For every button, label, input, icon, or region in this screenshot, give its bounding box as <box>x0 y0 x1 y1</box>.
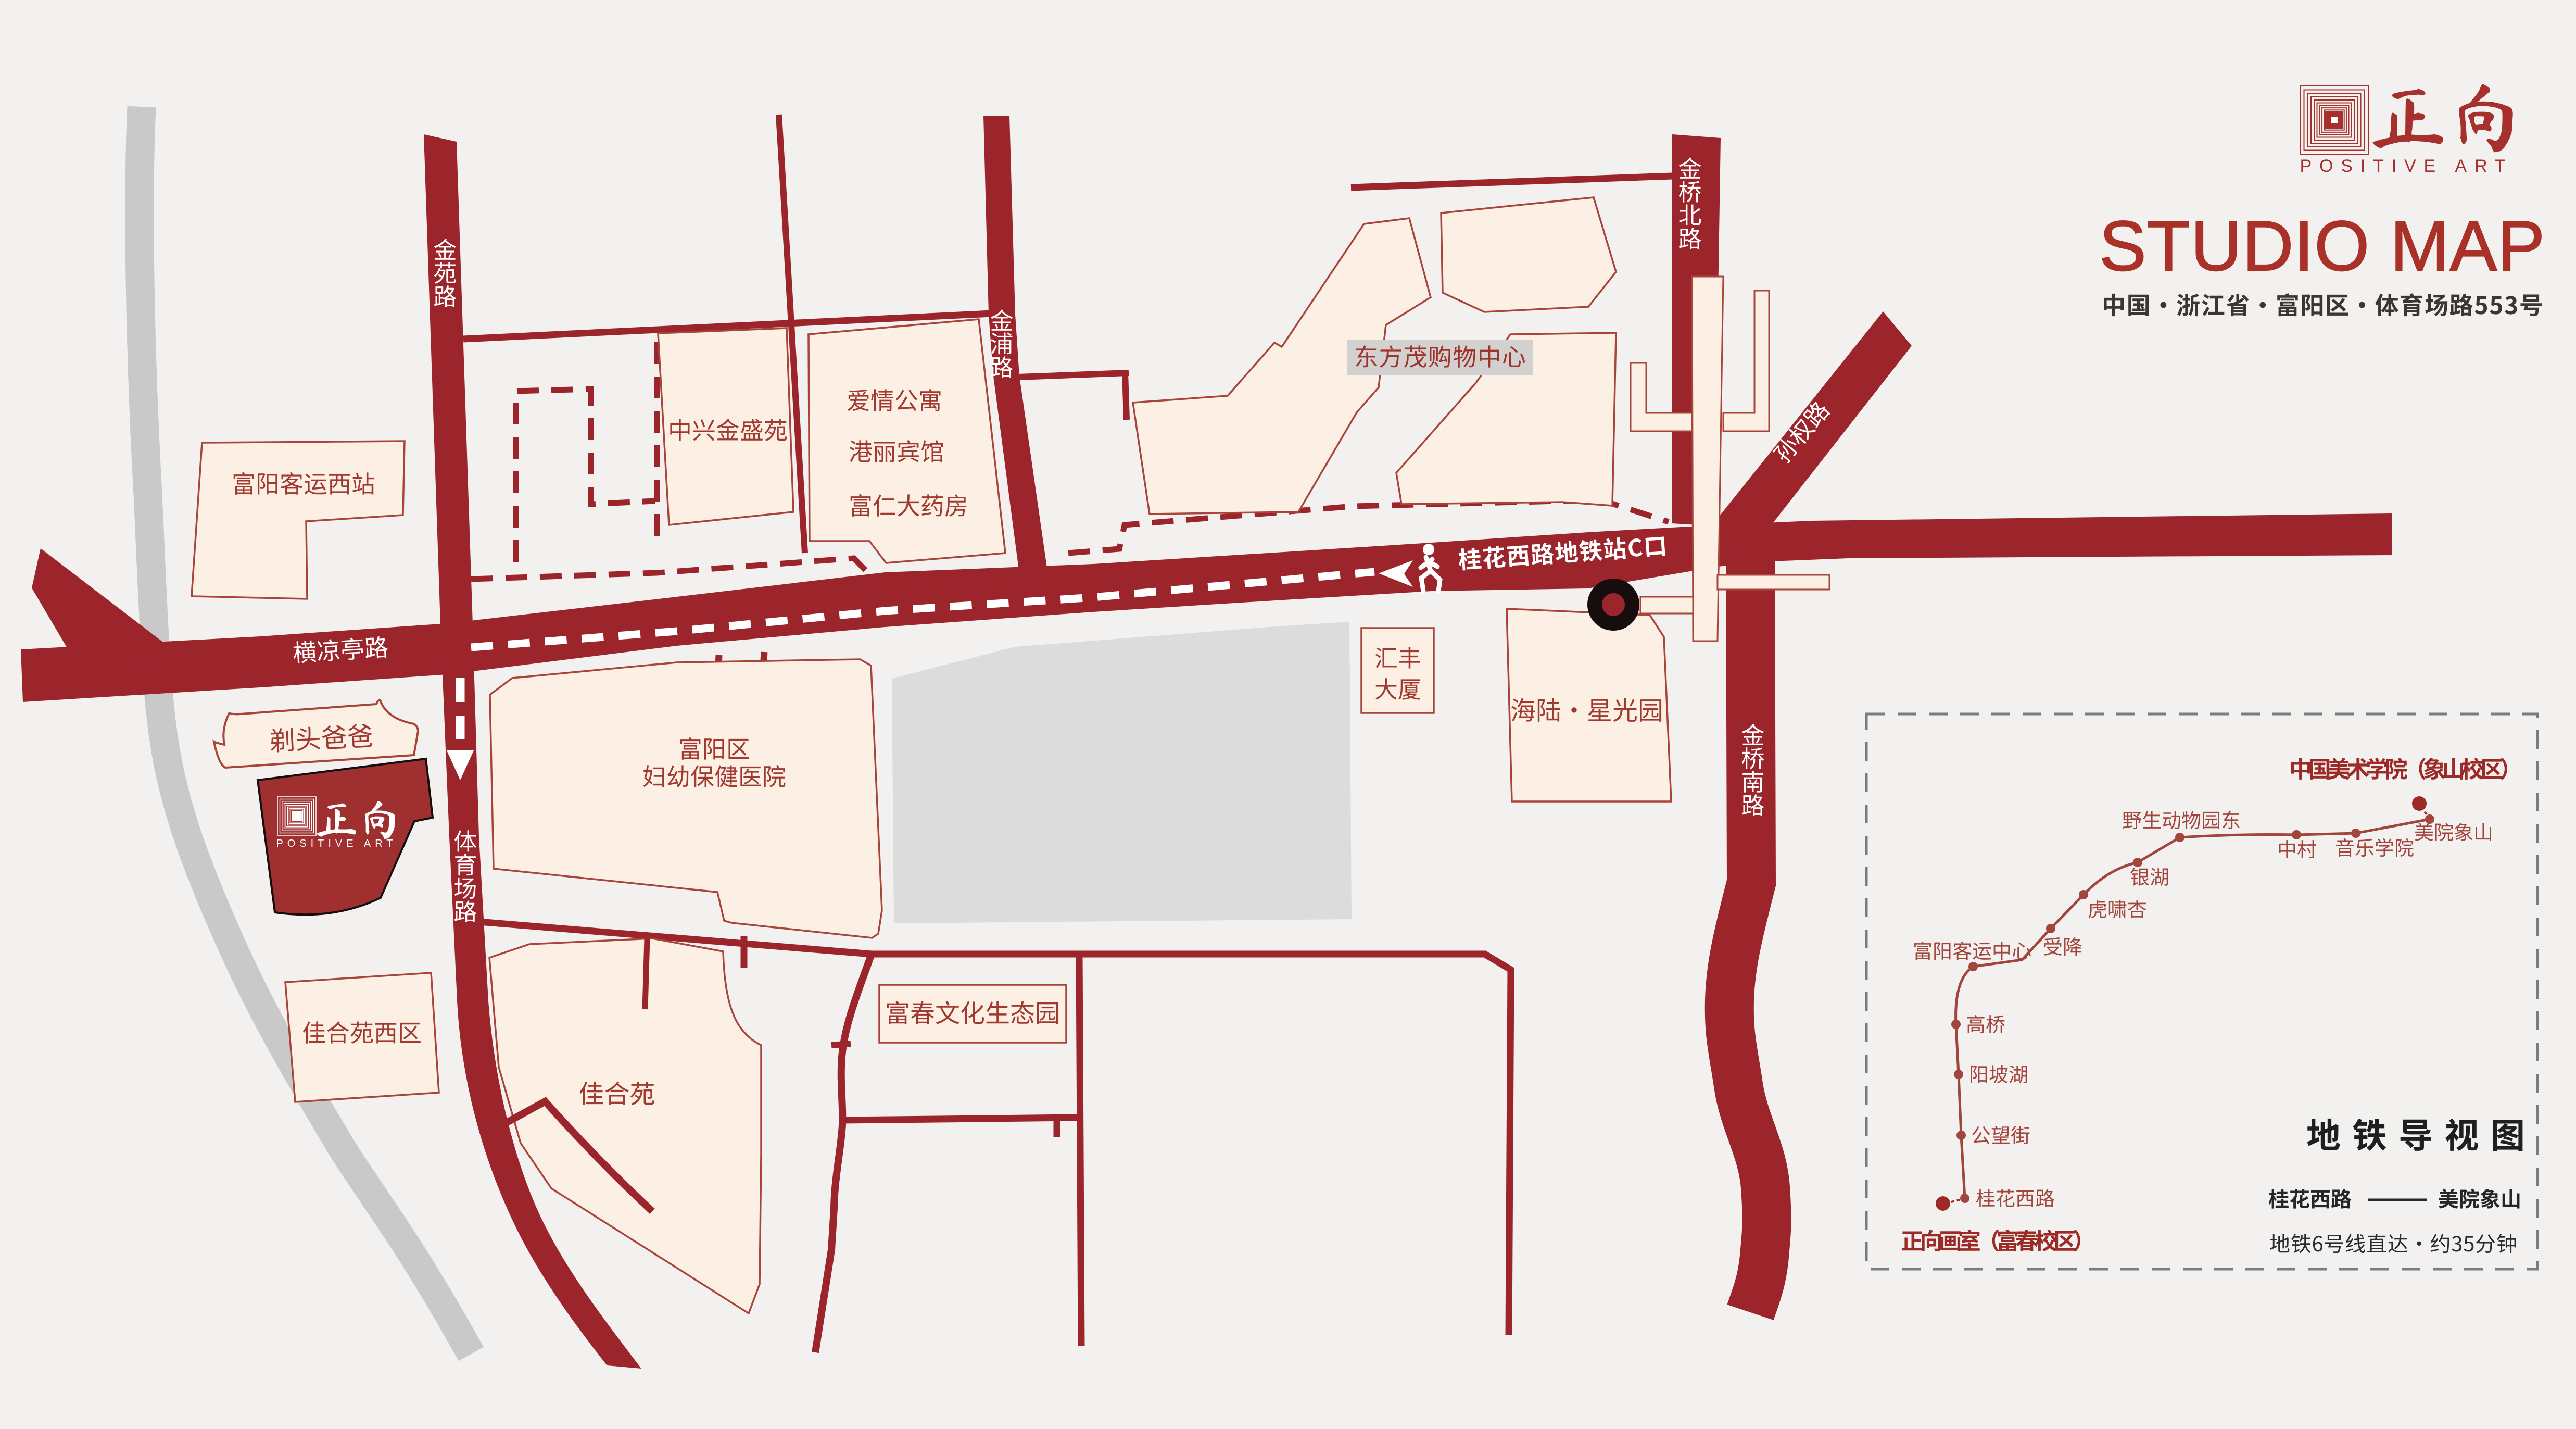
svg-text:富仁大药房: 富仁大药房 <box>849 487 968 522</box>
svg-text:佳合苑: 佳合苑 <box>578 1074 655 1111</box>
svg-text:富春文化生态园: 富春文化生态园 <box>885 993 1060 1030</box>
svg-text:中国·浙江省·富阳区·体育场路553号: 中国·浙江省·富阳区·体育场路553号 <box>2102 287 2543 321</box>
svg-text:高桥: 高桥 <box>1966 1009 2005 1037</box>
svg-text:POSITIVE ART: POSITIVE ART <box>276 838 397 849</box>
svg-text:富阳客运西站: 富阳客运西站 <box>232 466 375 500</box>
svg-text:美院象山: 美院象山 <box>2438 1183 2521 1213</box>
svg-text:中村: 中村 <box>2277 834 2317 862</box>
svg-text:金浦路: 金浦路 <box>985 308 1019 379</box>
svg-text:金桥北路: 金桥北路 <box>1673 156 1707 250</box>
svg-text:正向: 正向 <box>2369 77 2525 155</box>
svg-text:汇丰: 汇丰 <box>1374 640 1421 673</box>
svg-text:金桥南路: 金桥南路 <box>1736 723 1770 817</box>
svg-text:海陆·星光园: 海陆·星光园 <box>1510 691 1663 728</box>
svg-text:妇幼保健医院: 妇幼保健医院 <box>642 758 786 793</box>
svg-text:地铁6号线直达·约35分钟: 地铁6号线直达·约35分钟 <box>2269 1227 2517 1258</box>
svg-text:正向: 正向 <box>314 797 402 841</box>
svg-text:桂花西路: 桂花西路 <box>1976 1183 2055 1211</box>
svg-text:体育场路: 体育场路 <box>449 829 483 923</box>
svg-text:STUDIO MAP: STUDIO MAP <box>2099 206 2545 285</box>
svg-text:中国美术学院（象山校区）: 中国美术学院（象山校区） <box>2289 751 2522 784</box>
svg-text:爱情公寓: 爱情公寓 <box>847 382 942 417</box>
svg-text:港丽宾馆: 港丽宾馆 <box>849 433 944 468</box>
svg-text:POSITIVE ART: POSITIVE ART <box>2300 156 2513 176</box>
svg-text:受降: 受降 <box>2043 931 2082 960</box>
svg-text:横凉亭路: 横凉亭路 <box>292 629 389 669</box>
svg-text:美院象山: 美院象山 <box>2414 817 2493 845</box>
svg-text:银湖: 银湖 <box>2130 861 2169 890</box>
svg-text:东方茂购物中心: 东方茂购物中心 <box>1354 339 1526 373</box>
svg-text:剃头爸爸: 剃头爸爸 <box>268 716 374 758</box>
svg-text:公望街: 公望街 <box>1971 1120 2030 1148</box>
svg-text:富阳客运中心: 富阳客运中心 <box>1913 935 2031 964</box>
svg-text:大厦: 大厦 <box>1374 671 1421 705</box>
svg-text:虎啸杏: 虎啸杏 <box>2088 894 2147 922</box>
svg-text:野生动物园东: 野生动物园东 <box>2122 805 2241 833</box>
svg-text:佳合苑西区: 佳合苑西区 <box>302 1014 422 1049</box>
svg-text:音乐学院: 音乐学院 <box>2335 832 2414 861</box>
svg-text:中兴金盛苑: 中兴金盛苑 <box>668 412 788 446</box>
svg-text:地铁导视图: 地铁导视图 <box>2306 1108 2525 1158</box>
svg-text:桂花西路: 桂花西路 <box>2268 1183 2352 1213</box>
svg-text:正向画室（富春校区）: 正向画室（富春校区） <box>1901 1223 2095 1256</box>
svg-text:金苑路: 金苑路 <box>428 237 462 308</box>
svg-text:阳坡湖: 阳坡湖 <box>1969 1059 2028 1087</box>
